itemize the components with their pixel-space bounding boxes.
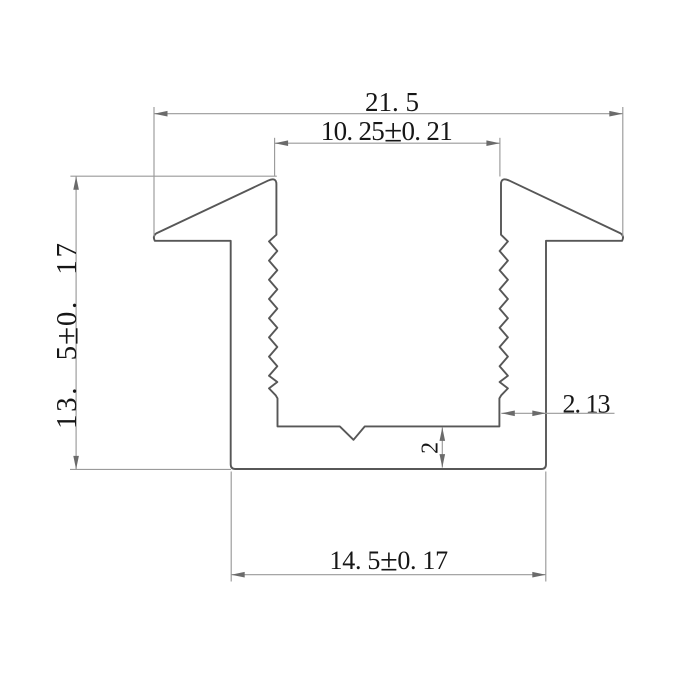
svg-text:13. 5±0. 17: 13. 5±0. 17 — [49, 243, 85, 429]
svg-text:2: 2 — [418, 442, 444, 454]
svg-text:2. 13: 2. 13 — [563, 389, 610, 418]
svg-text:10. 25±0. 21: 10. 25±0. 21 — [321, 113, 452, 149]
svg-text:14. 5±0. 17: 14. 5±0. 17 — [330, 542, 449, 578]
